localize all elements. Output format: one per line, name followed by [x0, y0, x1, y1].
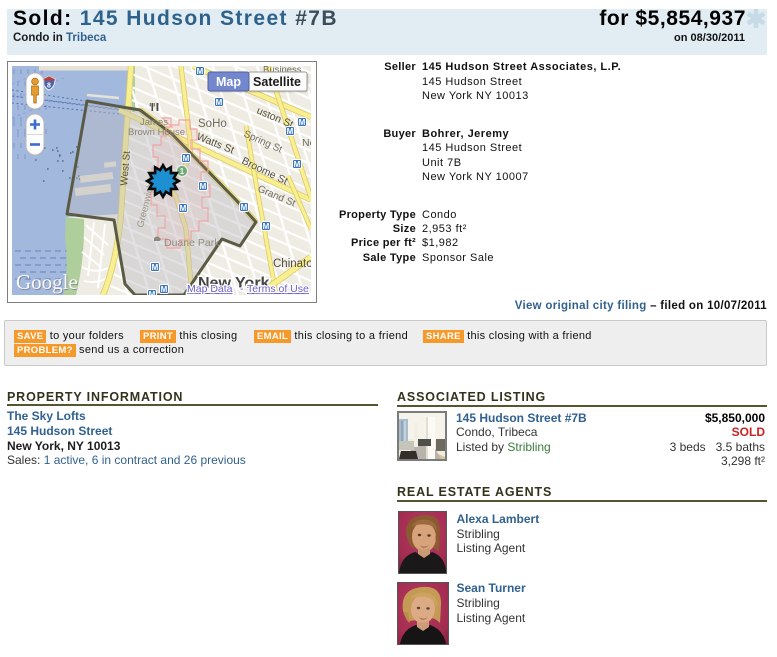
svg-text:M: M: [216, 98, 223, 107]
svg-text:M: M: [149, 290, 156, 295]
svg-text:Terms of Use: Terms of Use: [247, 283, 309, 295]
svg-text:M: M: [200, 182, 207, 191]
svg-text:M: M: [183, 154, 190, 163]
svg-text:M: M: [294, 160, 301, 169]
svg-text:M: M: [152, 263, 159, 272]
svg-text:Google: Google: [16, 270, 78, 294]
svg-text:-: -: [240, 283, 244, 295]
svg-text:8: 8: [47, 83, 51, 90]
svg-text:Brown House: Brown House: [128, 127, 185, 138]
svg-text:Map Data: Map Data: [187, 283, 233, 295]
svg-text:1: 1: [180, 167, 185, 176]
svg-text:M: M: [161, 285, 168, 294]
svg-text:Satellite: Satellite: [253, 75, 301, 89]
svg-text:Map: Map: [216, 75, 241, 89]
svg-text:M: M: [299, 118, 306, 127]
svg-text:M: M: [180, 204, 187, 213]
